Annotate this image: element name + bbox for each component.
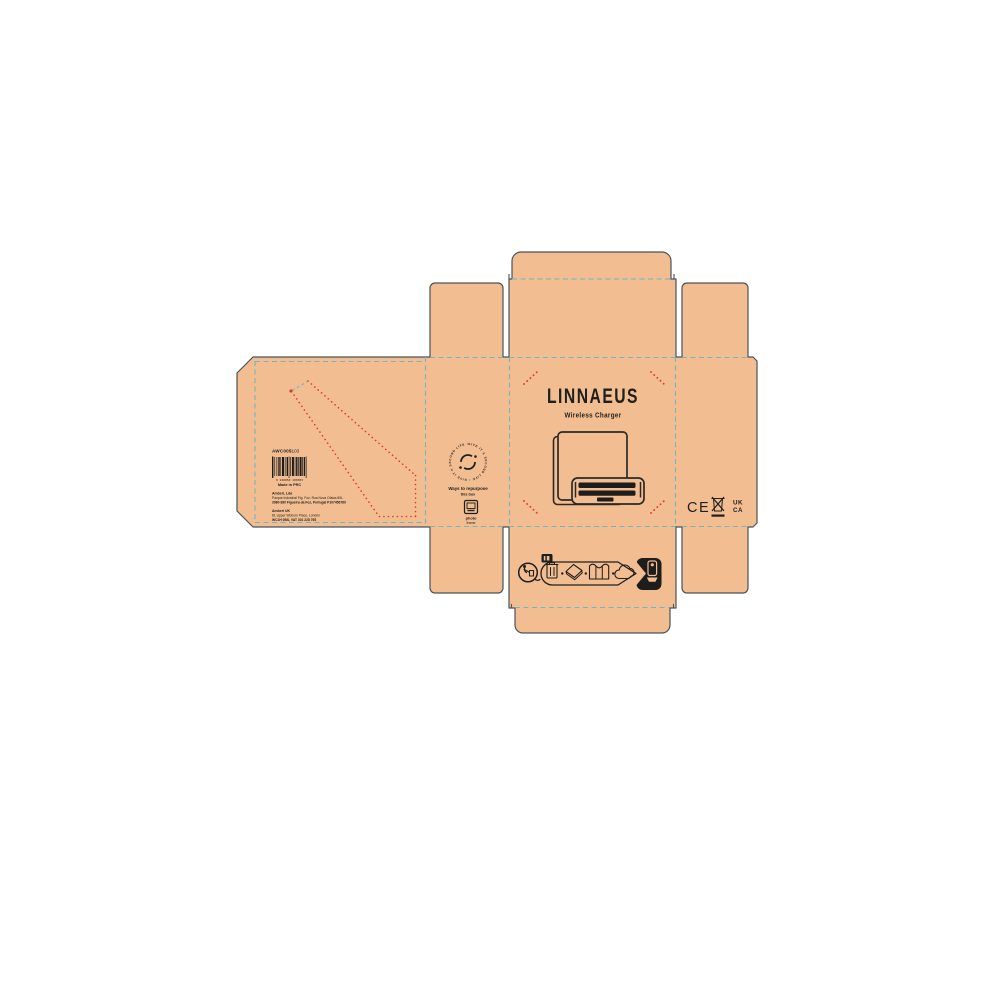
- address-pt-name: Amberi, Lda: [272, 492, 292, 496]
- product-name: Wireless Charger: [565, 411, 622, 420]
- sku-label: AWC005: [272, 449, 292, 454]
- address-uk-line2: WC1H 0BS, VAT 301 228 765: [272, 518, 316, 522]
- box-dieline-silhouette: [237, 252, 757, 633]
- suggestion-label-bottom: frame: [467, 521, 476, 525]
- charger-slot-bottom: [579, 491, 636, 496]
- suggestion-label-top: photo: [466, 516, 477, 521]
- dieline-artwork: AWC005 -103 0 220050 100303 Made in PRC …: [0, 0, 1000, 1000]
- address-uk-line1: 81 Upper Woburn Place, London: [272, 514, 320, 518]
- barcode-digits: 0 220050 100303: [276, 478, 303, 482]
- address-uk-name: Amberi UK: [272, 509, 291, 513]
- strip-step-badge-glyph-2: [547, 556, 550, 561]
- step-dot-2: [585, 572, 587, 574]
- brand-name: LINNAEUS: [547, 385, 639, 408]
- repurpose-heading: Ways to repurpose: [448, 486, 488, 491]
- ce-mark: CE: [687, 500, 710, 516]
- repurpose-subheading: this box: [461, 493, 476, 497]
- step-dot-3: [612, 572, 614, 574]
- ukca-top: UK: [733, 500, 743, 507]
- strip-step-badge-glyph-1: [544, 556, 546, 561]
- result-flag: [637, 558, 662, 590]
- packaging-dieline-canvas: AWC005 -103 0 220050 100303 Made in PRC …: [0, 0, 1000, 1000]
- made-in-label: Made in PRC: [278, 483, 301, 487]
- ukca-bottom: CA: [733, 507, 743, 514]
- address-pt-line1: Parque Industrial Fig. Foz, Rua Nova Ola…: [272, 496, 343, 500]
- sku-suffix-label: -103: [290, 449, 300, 454]
- step-dot-1: [561, 572, 563, 574]
- charger-slot-top: [579, 483, 636, 489]
- address-pt-line2: 3080-380 Figueira da Foz, Portugal P1074…: [272, 501, 346, 505]
- barcode: [272, 457, 307, 479]
- tear-band-anchor-dot: [289, 389, 292, 392]
- dieline-outline: [237, 252, 757, 633]
- charger-port: [597, 498, 614, 502]
- ukca-mark: UK CA: [733, 500, 743, 515]
